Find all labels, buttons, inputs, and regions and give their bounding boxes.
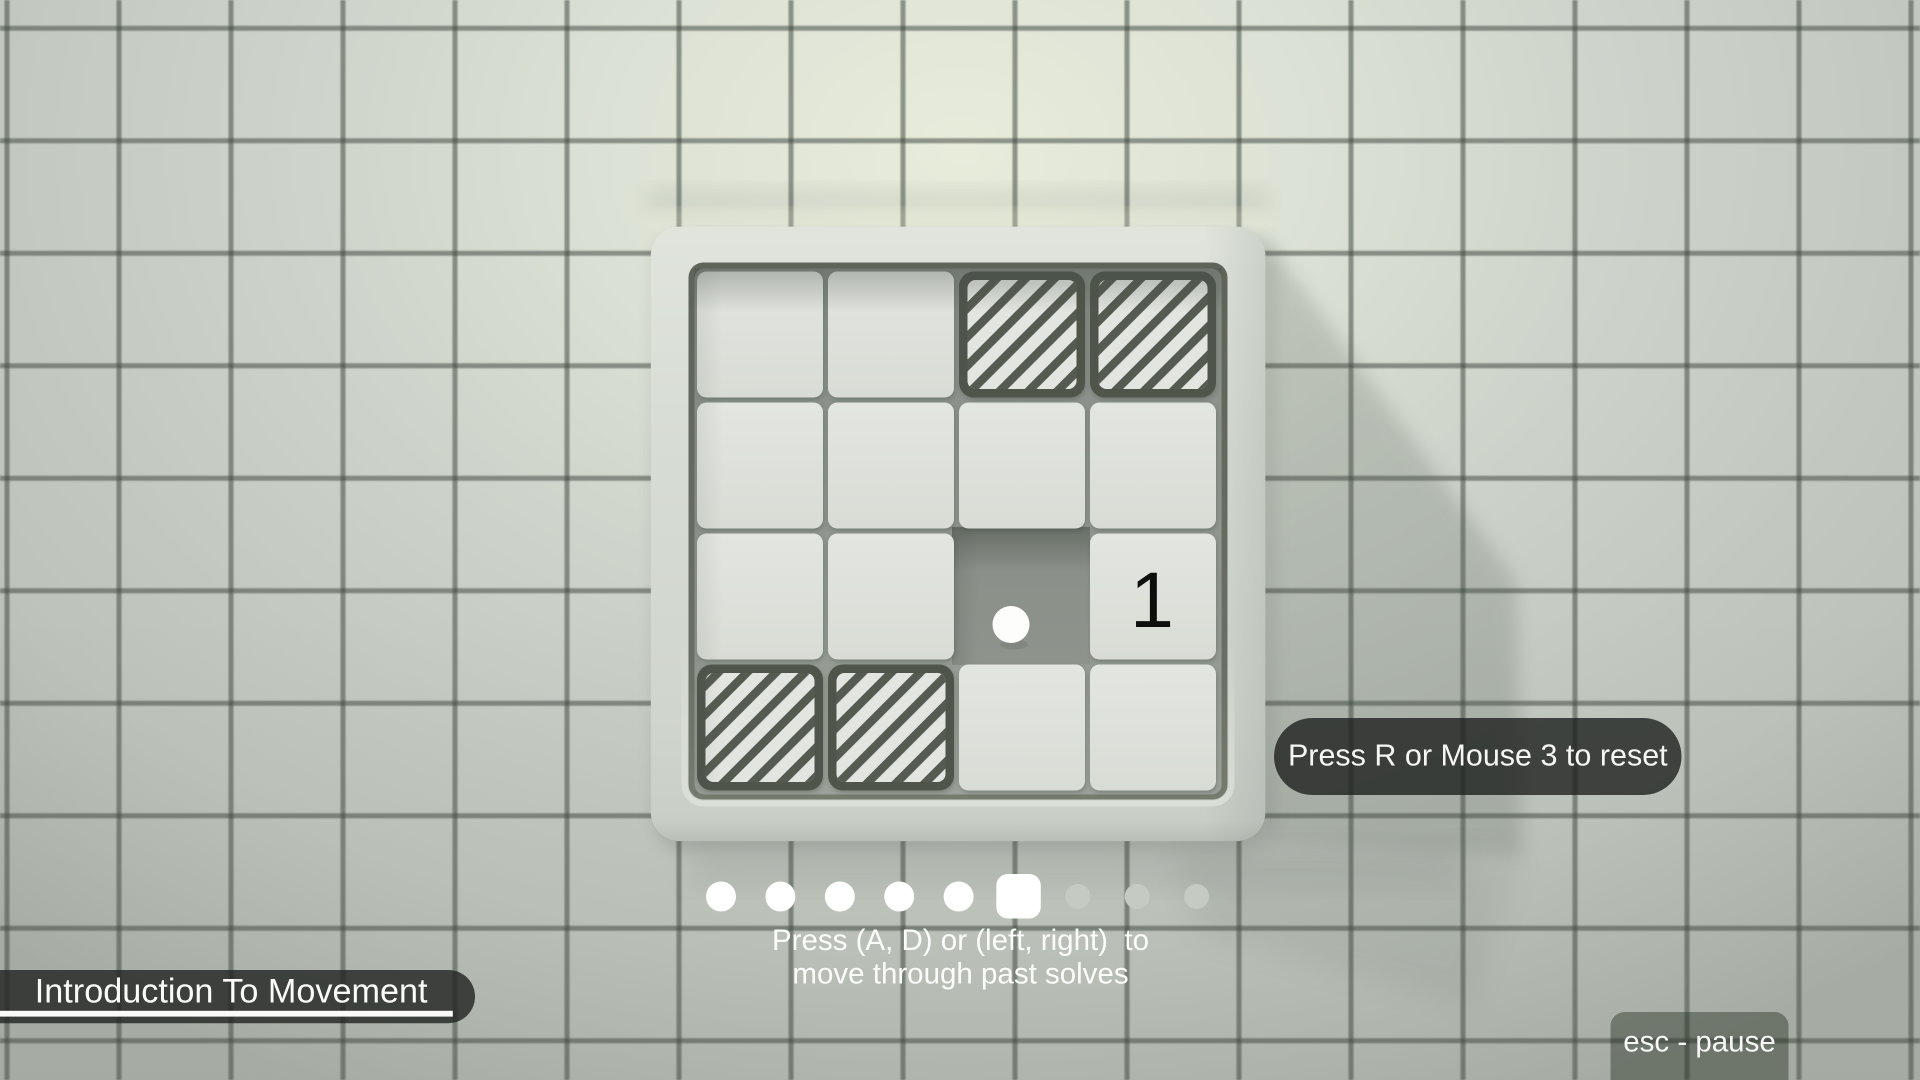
svg-text:esc - pause: esc - pause	[1623, 1026, 1776, 1059]
svg-text:Introduction To Movement: Introduction To Movement	[35, 973, 428, 1011]
svg-text:Press (A, D) or (left, right): Press (A, D) or (left, right) to	[772, 924, 1149, 957]
svg-text:move through past solves: move through past solves	[792, 958, 1128, 991]
svg-text:1: 1	[1130, 555, 1174, 644]
svg-text:Press R or Mouse 3 to reset: Press R or Mouse 3 to reset	[1288, 739, 1668, 773]
